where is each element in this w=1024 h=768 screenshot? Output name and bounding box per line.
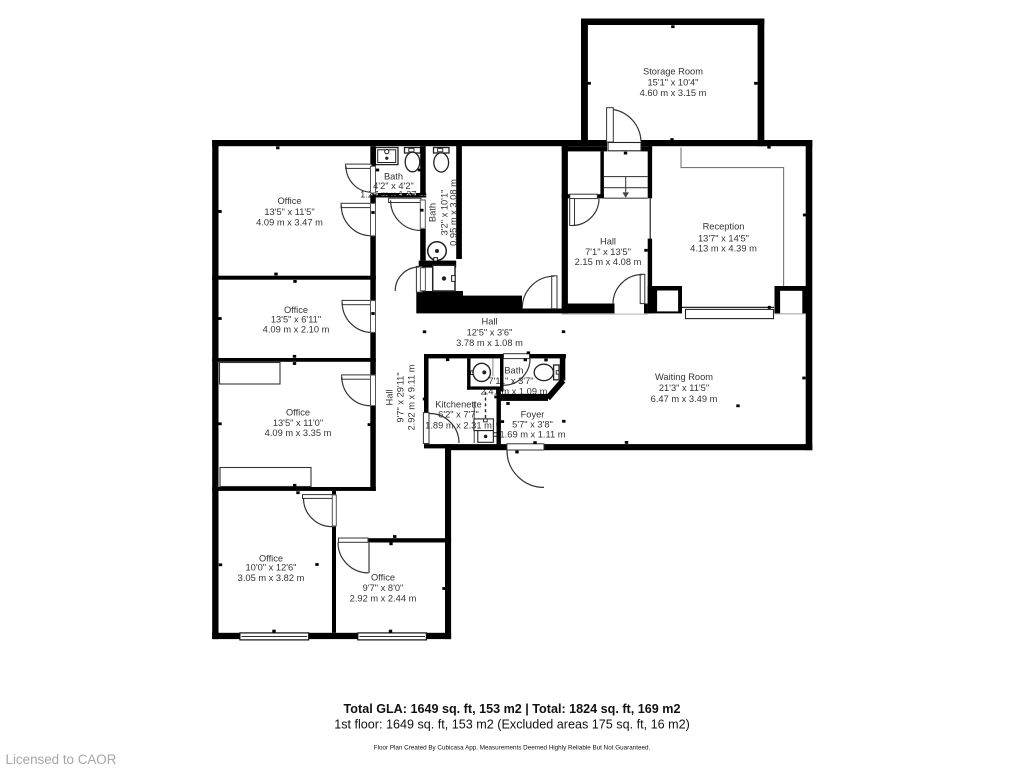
svg-text:1st floor: 1649 sq. ft, 153 m2: 1st floor: 1649 sq. ft, 153 m2 (Excluded…: [334, 718, 690, 732]
svg-text:9'7" x 29'11": 9'7" x 29'11": [396, 372, 406, 422]
svg-text:3.78 m x 1.08 m: 3.78 m x 1.08 m: [456, 338, 523, 348]
svg-text:Bath: Bath: [504, 365, 523, 375]
svg-text:Floor Plan Created By Cubicasa: Floor Plan Created By Cubicasa App. Meas…: [374, 745, 651, 752]
svg-text:Hall: Hall: [481, 316, 497, 326]
svg-text:4.13 m x 4.39 m: 4.13 m x 4.39 m: [690, 243, 757, 253]
svg-text:4.60 m x 3.15 m: 4.60 m x 3.15 m: [640, 88, 707, 98]
svg-text:15'1" x 10'4": 15'1" x 10'4": [648, 77, 699, 87]
svg-text:4'2" x 4'2": 4'2" x 4'2": [373, 181, 414, 191]
svg-text:6.47 m x 3.49 m: 6.47 m x 3.49 m: [651, 394, 718, 404]
svg-text:6'2" x 7'7": 6'2" x 7'7": [438, 409, 479, 419]
svg-text:4.09 m x 2.10 m: 4.09 m x 2.10 m: [263, 325, 330, 335]
svg-text:21'3" x 11'5": 21'3" x 11'5": [659, 383, 709, 393]
svg-text:Office: Office: [284, 305, 308, 315]
svg-text:2.15 m x 4.08 m: 2.15 m x 4.08 m: [575, 257, 642, 267]
svg-text:Bath: Bath: [428, 203, 438, 222]
svg-text:Office: Office: [277, 196, 301, 206]
svg-text:Licensed to CAOR: Licensed to CAOR: [6, 752, 117, 767]
svg-text:1.69 m x 1.11 m: 1.69 m x 1.11 m: [500, 429, 566, 439]
svg-text:Waiting Room: Waiting Room: [655, 372, 713, 382]
svg-text:1.89 m x 2.31 m: 1.89 m x 2.31 m: [425, 420, 492, 430]
svg-text:13'5" x 11'5": 13'5" x 11'5": [264, 207, 314, 217]
svg-text:Foyer: Foyer: [521, 409, 545, 419]
svg-text:2.92 m x 2.44 m: 2.92 m x 2.44 m: [350, 594, 417, 604]
svg-text:5'7" x 3'8": 5'7" x 3'8": [512, 419, 553, 429]
svg-text:Kitchenette: Kitchenette: [435, 399, 482, 409]
svg-text:10'0" x 12'6": 10'0" x 12'6": [246, 563, 297, 573]
svg-text:13'7" x 14'5": 13'7" x 14'5": [698, 234, 749, 244]
svg-text:Hall: Hall: [384, 389, 394, 405]
svg-text:Reception: Reception: [703, 222, 745, 232]
svg-text:2.92 m x 9.11 m: 2.92 m x 9.11 m: [407, 364, 417, 430]
svg-text:Total GLA: 1649 sq. ft, 153 m2: Total GLA: 1649 sq. ft, 153 m2 | Total: …: [344, 702, 681, 716]
svg-text:Office: Office: [286, 408, 310, 418]
svg-text:Storage Room: Storage Room: [643, 67, 703, 77]
svg-text:12'5" x 3'6": 12'5" x 3'6": [467, 328, 513, 338]
svg-text:9'7" x 8'0": 9'7" x 8'0": [363, 583, 404, 593]
svg-text:Office: Office: [371, 573, 395, 583]
svg-text:13'5" x 11'0": 13'5" x 11'0": [273, 418, 323, 428]
svg-text:13'5" x 6'11": 13'5" x 6'11": [271, 315, 321, 325]
svg-text:0.95 m x 3.08 m: 0.95 m x 3.08 m: [449, 179, 459, 246]
svg-text:7'1" x 13'5": 7'1" x 13'5": [585, 247, 631, 257]
svg-text:4.09 m x 3.47 m: 4.09 m x 3.47 m: [256, 218, 323, 228]
svg-text:3.05 m x 3.82 m: 3.05 m x 3.82 m: [238, 573, 305, 583]
svg-text:4.09 m x 3.35 m: 4.09 m x 3.35 m: [265, 428, 332, 438]
svg-text:Hall: Hall: [600, 237, 616, 247]
